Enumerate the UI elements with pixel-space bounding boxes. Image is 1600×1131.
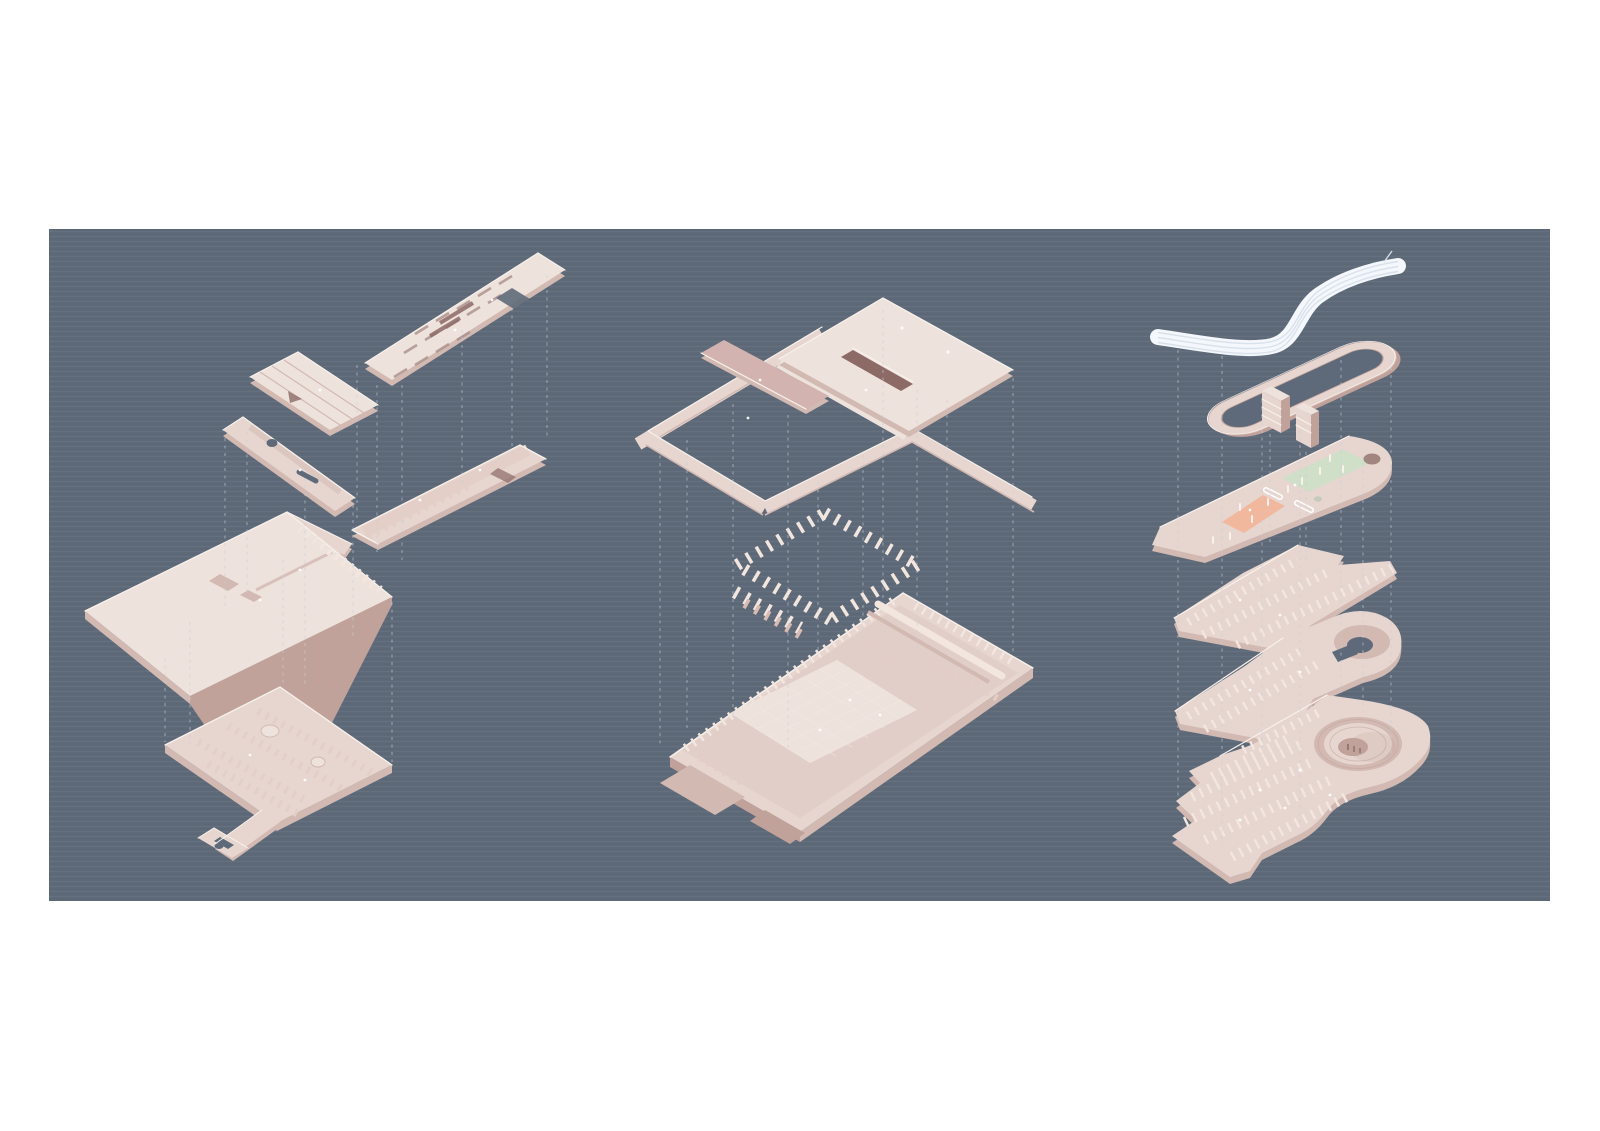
round-room (261, 725, 279, 737)
lobe-hole (1364, 454, 1381, 465)
round-room (311, 757, 325, 767)
exploded-axonometric-triptych (0, 0, 1600, 1131)
bar-oculus (267, 439, 278, 447)
presentation-sheet (0, 0, 1600, 1131)
gray-disc (1314, 496, 1322, 502)
